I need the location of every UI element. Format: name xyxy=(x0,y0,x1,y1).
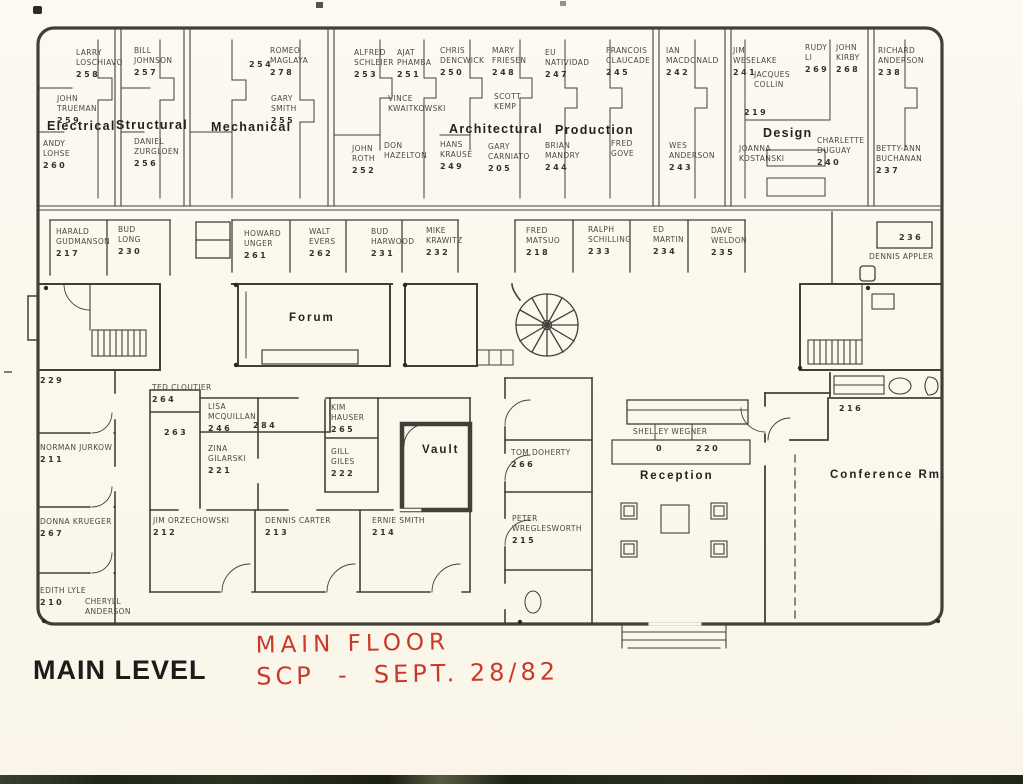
office-label-bill-johnson: BILL JOHNSON257 xyxy=(134,46,172,77)
office-label-don-hazelton: DON HAZELTON xyxy=(384,141,427,161)
office-label-larry-loschiavo: LARRY LOSCHIAVO258 xyxy=(76,48,123,79)
office-label-chris-dencwick: CHRIS DENCWICK250 xyxy=(440,46,484,77)
department-label-design: Design xyxy=(763,126,812,140)
office-label-howard-unger: HOWARD UNGER261 xyxy=(244,229,281,260)
area-label-vault: Vault xyxy=(422,444,459,456)
office-label-bud-long: BUD LONG230 xyxy=(118,225,142,256)
office-label-john-kirby: JOHN KIRBY268 xyxy=(836,43,860,74)
office-label-hans-krause: HANS KRAUSE249 xyxy=(440,140,472,171)
department-label-architectural: Architectural xyxy=(449,122,543,136)
room-number-236: 236 xyxy=(899,233,923,242)
office-label-john-roth: JOHN ROTH252 xyxy=(352,144,376,175)
office-label-andy-lohse: ANDY LOHSE260 xyxy=(43,139,70,170)
page-title: MAIN LEVEL xyxy=(33,655,207,686)
room-number-216: 216 xyxy=(839,404,863,413)
office-label-cheryll-anderson: CHERYLL ANDERSON xyxy=(85,597,131,617)
area-label-reception: Reception xyxy=(640,470,714,482)
office-label-peter-wreglesworth: PETER WREGLESWORTH215 xyxy=(512,514,582,545)
office-label-jacques-collin: JACQUES COLLIN xyxy=(754,70,790,90)
office-label-ian-macdonald: IAN MACDONALD242 xyxy=(666,46,719,77)
room-number-254: 254 xyxy=(249,60,273,69)
office-label-mary-friesen: MARY FRIESEN248 xyxy=(492,46,526,77)
office-label-fred-gove: FRED GOVE xyxy=(611,139,634,159)
scanner-edge-artifact xyxy=(0,775,1023,784)
office-label-gary-carniato: GARY CARNIATO205 xyxy=(488,142,530,173)
room-number-reception-left: 0 xyxy=(656,444,664,453)
office-label-romeo-maglaya: ROMEO MAGLAYA278 xyxy=(270,46,308,77)
office-label-walt-evers: WALT EVERS262 xyxy=(309,227,336,258)
office-label-john-trueman: JOHN TRUEMAN259 xyxy=(57,94,97,125)
office-label-francois-claucade: FRANCOIS CLAUCADE245 xyxy=(606,46,650,77)
area-label-forum: Forum xyxy=(289,312,335,324)
room-number-263: 263 xyxy=(164,428,188,437)
office-label-wes-anderson: WES ANDERSON243 xyxy=(669,141,715,172)
office-label-donna-krueger: DONNA KRUEGER267 xyxy=(40,517,112,538)
office-label-rudy-li: RUDY LI269 xyxy=(805,43,829,74)
office-label-gill-giles: GILL GILES222 xyxy=(331,447,355,478)
office-label-dennis-appler: DENNIS APPLER xyxy=(869,252,934,262)
annotation-line2: SCP - SEPT. 28/82 xyxy=(256,657,559,690)
office-label-ralph-schilling: RALPH SCHILLING233 xyxy=(588,225,631,256)
office-label-shelley-wegner: SHELLEY WEGNER xyxy=(633,427,707,437)
office-label-ernie-smith: ERNIE SMITH214 xyxy=(372,516,425,537)
office-label-edith-lyle: EDITH LYLE210 xyxy=(40,586,86,607)
office-label-mike-krawitz: MIKE KRAWITZ232 xyxy=(426,226,463,257)
office-label-eu-natividad: EU NATIVIDAD247 xyxy=(545,48,589,79)
office-label-gary-smith: GARY SMITH255 xyxy=(271,94,297,125)
office-label-brian-mandry: BRIAN MANDRY244 xyxy=(545,141,580,172)
department-label-structural: Structural xyxy=(116,118,188,132)
office-label-harald-gudmanson: HARALD GUDMANSON217 xyxy=(56,227,110,258)
office-label-alfred-schleier: ALFRED SCHLEIER253 xyxy=(354,48,394,79)
office-label-fred-matsuo: FRED MATSUO218 xyxy=(526,226,560,257)
office-label-scott-kemp: SCOTT KEMP xyxy=(494,92,521,112)
office-label-dennis-carter: DENNIS CARTER213 xyxy=(265,516,331,537)
annotation-line1: MAIN FLOOR xyxy=(256,627,559,658)
office-label-ted-cloutier: TED CLOUTIER264 xyxy=(152,383,212,404)
office-label-kim-hauser: KIM HAUSER265 xyxy=(331,403,364,434)
office-label-betty-ann-buchanan: BETTY-ANN BUCHANAN237 xyxy=(876,144,922,175)
office-label-ed-martin: ED MARTIN234 xyxy=(653,225,684,256)
office-label-daniel-zurgloen: DANIEL ZURGLOEN256 xyxy=(134,137,179,168)
room-number-reception-right: 220 xyxy=(696,444,720,453)
office-label-zina-gilarski: ZINA GILARSKI221 xyxy=(208,444,246,475)
office-label-joanna-kostanski: JOANNA KOSTANSKI xyxy=(739,144,784,164)
room-number-284: 284 xyxy=(253,421,277,430)
department-label-production: Production xyxy=(555,123,634,137)
office-label-dave-weldon: DAVE WELDON235 xyxy=(711,226,747,257)
office-label-richard-anderson: RICHARD ANDERSON238 xyxy=(878,46,924,77)
office-label-charlette-duguay: CHARLETTE DUGUAY240 xyxy=(817,136,865,167)
handwritten-annotation: MAIN FLOOR SCP - SEPT. 28/82 xyxy=(256,627,560,690)
office-label-jim-orzechowski: JIM ORZECHOWSKI212 xyxy=(153,516,229,537)
office-label-lisa-mcquillan: LISA MCQUILLAN246 xyxy=(208,402,256,433)
office-label-tom-doherty: TOM DOHERTY266 xyxy=(511,448,571,469)
office-label-vince-kwaitkowski: VINCE KWAITKOWSKI xyxy=(388,94,446,114)
office-label-bud-harwood: BUD HARWOOD231 xyxy=(371,227,414,258)
area-label-conference-room: Conference Rm. xyxy=(830,469,946,481)
room-number-219: 219 xyxy=(744,108,768,117)
room-number-229: 229 xyxy=(40,376,64,385)
office-label-norman-jurkow: NORMAN JURKOW211 xyxy=(40,443,112,464)
floor-plan: ElectricalStructuralMechanicalArchitectu… xyxy=(0,0,1023,784)
office-label-ajat-phamba: AJAT PHAMBA251 xyxy=(397,48,431,79)
